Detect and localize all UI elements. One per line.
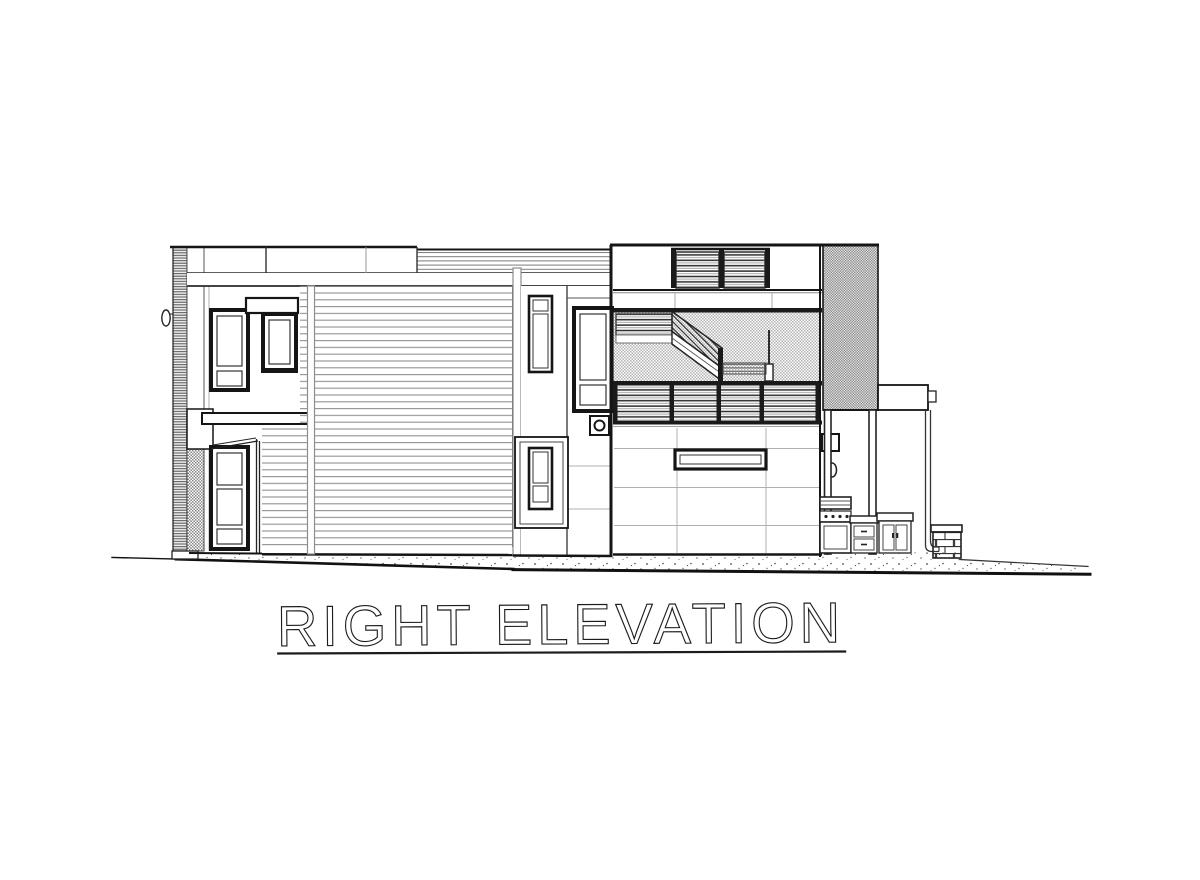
grill [820,497,851,553]
porch-fascia [878,385,928,410]
drawing-title: RIGHT ELEVATION [277,591,845,659]
grade-line-left [112,558,176,560]
outdoor-kitchen [820,497,913,553]
box-window-header [246,298,298,313]
roof-deck-louvers [671,248,770,288]
entry-column [513,245,612,557]
right-elevation-drawing: RIGHT ELEVATION [0,0,1200,880]
panel-wall [613,427,820,554]
elevation-sheet: RIGHT ELEVATION [0,0,1200,880]
chimney-column [821,245,879,410]
balcony-louver-panel [616,314,672,335]
corner-hatch-strip [173,247,187,551]
balcony-bench [723,363,766,374]
masonry-pier [931,525,962,558]
title-block: RIGHT ELEVATION [277,591,846,659]
drawer-cabinet [850,516,878,553]
fascia-band [187,273,612,286]
door-cabinet [877,513,913,553]
downspout-left [308,286,315,554]
floor-band [202,413,313,424]
wall-sconce [162,310,170,326]
